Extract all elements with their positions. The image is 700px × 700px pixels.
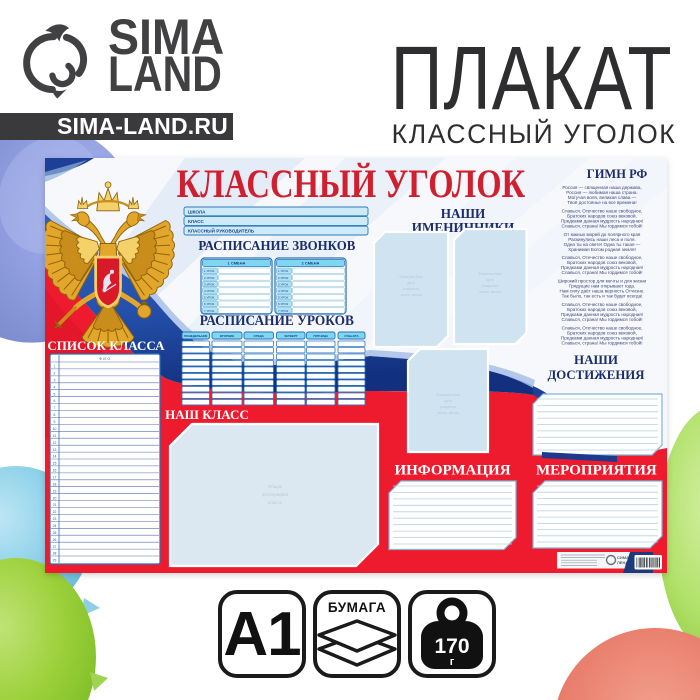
svg-text:14: 14 <box>53 455 57 459</box>
svg-text:фотография: фотография <box>262 492 288 497</box>
svg-text:число, месяц: число, месяц <box>400 293 422 297</box>
svg-text:ГИМН РФ: ГИМН РФ <box>587 167 648 181</box>
svg-text:Фамилия Имя: Фамилия Имя <box>399 275 422 279</box>
svg-text:Хранимая Богом родная земля!: Хранимая Богом родная земля! <box>568 247 636 252</box>
svg-text:Фамилия Имя: Фамилия Имя <box>478 272 501 276</box>
svg-text:КЛАСС: КЛАСС <box>188 219 205 224</box>
svg-text:рождения: рождения <box>440 405 456 409</box>
svg-text:1: 1 <box>54 365 56 369</box>
svg-text:МЕРОПРИЯТИЯ: МЕРОПРИЯТИЯ <box>536 463 657 479</box>
svg-text:дата: дата <box>444 399 452 403</box>
svg-text:9: 9 <box>54 420 56 424</box>
svg-text:25: 25 <box>53 531 57 535</box>
svg-text:12: 12 <box>53 441 57 445</box>
svg-text:ВТОРНИК: ВТОРНИК <box>220 334 234 338</box>
svg-text:16: 16 <box>53 469 57 473</box>
svg-text:24: 24 <box>53 524 57 528</box>
svg-text:рождения: рождения <box>482 284 498 288</box>
svg-text:2 УРОК: 2 УРОК <box>278 276 289 280</box>
svg-text:4: 4 <box>54 385 56 389</box>
svg-text:3: 3 <box>54 379 56 383</box>
svg-text:дата: дата <box>407 281 415 285</box>
svg-text:10: 10 <box>53 427 57 431</box>
svg-text:рождения: рождения <box>403 287 419 291</box>
svg-text:НАШИ: НАШИ <box>574 352 618 367</box>
svg-text:6 УРОК: 6 УРОК <box>204 302 215 306</box>
svg-text:20: 20 <box>53 496 57 500</box>
svg-text:11: 11 <box>53 434 57 438</box>
svg-text:Ф. И. О.: Ф. И. О. <box>99 357 111 361</box>
svg-text:5 УРОК: 5 УРОК <box>278 296 289 300</box>
svg-text:22: 22 <box>53 510 57 514</box>
svg-text:НАШИ: НАШИ <box>441 206 486 221</box>
svg-text:ДОСТИЖЕНИЯ: ДОСТИЖЕНИЯ <box>548 368 646 382</box>
svg-text:5 УРОК: 5 УРОК <box>204 296 215 300</box>
svg-text:СРЕДА: СРЕДА <box>254 334 265 338</box>
svg-text:1 СМЕНА: 1 СМЕНА <box>228 261 246 266</box>
svg-text:21: 21 <box>53 503 57 507</box>
svg-text:28: 28 <box>53 552 57 556</box>
svg-text:г: г <box>450 656 455 668</box>
svg-text:29: 29 <box>53 559 57 563</box>
svg-text:РАСПИСАНИЕ ЗВОНКОВ: РАСПИСАНИЕ ЗВОНКОВ <box>198 238 355 254</box>
svg-text:КЛАССНЫЙ РУКОВОДИТЕЛЬ: КЛАССНЫЙ РУКОВОДИТЕЛЬ <box>188 227 255 234</box>
svg-text:число, месяц: число, месяц <box>479 290 501 294</box>
svg-text:ШКОЛА: ШКОЛА <box>188 209 206 214</box>
svg-text:15: 15 <box>53 462 57 466</box>
svg-text:ЧЕТВЕРГ: ЧЕТВЕРГ <box>284 334 298 338</box>
svg-text:Фамилия Имя: Фамилия Имя <box>436 393 459 397</box>
svg-text:7 УРОК: 7 УРОК <box>204 309 215 313</box>
svg-text:3 УРОК: 3 УРОК <box>278 282 289 286</box>
svg-text:7: 7 <box>54 406 56 410</box>
svg-text:дата: дата <box>486 278 494 282</box>
svg-text:3 УРОК: 3 УРОК <box>204 282 215 286</box>
svg-text:18: 18 <box>53 482 57 486</box>
svg-text:КЛАССНЫЙ УГОЛОК: КЛАССНЫЙ УГОЛОК <box>177 161 526 206</box>
svg-text:5: 5 <box>54 392 56 396</box>
svg-text:13: 13 <box>53 448 57 452</box>
svg-text:Славься, страна! Мы гордимся т: Славься, страна! Мы гордимся тобой! <box>562 269 643 275</box>
svg-text:Славься, страна! Мы гордимся т: Славься, страна! Мы гордимся тобой! <box>562 339 643 345</box>
svg-text:2 СМЕНА: 2 СМЕНА <box>302 261 320 266</box>
svg-text:Славься, страна! Мы гордимся т: Славься, страна! Мы гордимся тобой! <box>562 222 643 228</box>
svg-text:6 УРОК: 6 УРОК <box>278 302 289 306</box>
svg-text:19: 19 <box>53 489 57 493</box>
svg-text:6: 6 <box>54 399 56 403</box>
svg-text:2: 2 <box>54 372 56 376</box>
svg-text:4 УРОК: 4 УРОК <box>204 289 215 293</box>
svg-text:Славься, страна! Мы гордимся т: Славься, страна! Мы гордимся тобой! <box>562 316 643 322</box>
svg-text:Твоё достоянье на все времена!: Твоё достоянье на все времена! <box>567 200 636 205</box>
svg-text:7 УРОК: 7 УРОК <box>278 309 289 313</box>
svg-text:4 УРОК: 4 УРОК <box>278 289 289 293</box>
svg-text:класса: класса <box>268 500 283 505</box>
svg-text:23: 23 <box>53 517 57 521</box>
svg-text:17: 17 <box>53 476 57 480</box>
svg-text:1 УРОК: 1 УРОК <box>204 269 215 273</box>
svg-text:2 УРОК: 2 УРОК <box>204 276 215 280</box>
svg-text:Общая: Общая <box>268 484 283 489</box>
svg-text:ПОНЕДЕЛЬНИК: ПОНЕДЕЛЬНИК <box>184 334 207 338</box>
svg-text:РАСПИСАНИЕ УРОКОВ: РАСПИСАНИЕ УРОКОВ <box>200 314 354 330</box>
svg-text:число, месяц: число, месяц <box>437 411 459 415</box>
svg-text:Так было, так есть и так будет: Так было, так есть и так будет всегда! <box>562 294 643 299</box>
svg-text:ИНФОРМАЦИЯ: ИНФОРМАЦИЯ <box>394 463 510 479</box>
svg-text:26: 26 <box>53 538 57 542</box>
svg-text:СУББОТА: СУББОТА <box>344 334 359 338</box>
svg-text:1 УРОК: 1 УРОК <box>278 269 289 273</box>
svg-text:СПИСОК КЛАССА: СПИСОК КЛАССА <box>47 338 165 353</box>
svg-text:8: 8 <box>54 413 56 417</box>
svg-text:НАШ КЛАСС: НАШ КЛАСС <box>165 407 249 422</box>
svg-text:170: 170 <box>434 635 469 658</box>
svg-text:ПЯТНИЦА: ПЯТНИЦА <box>313 334 329 338</box>
svg-text:27: 27 <box>53 545 57 549</box>
